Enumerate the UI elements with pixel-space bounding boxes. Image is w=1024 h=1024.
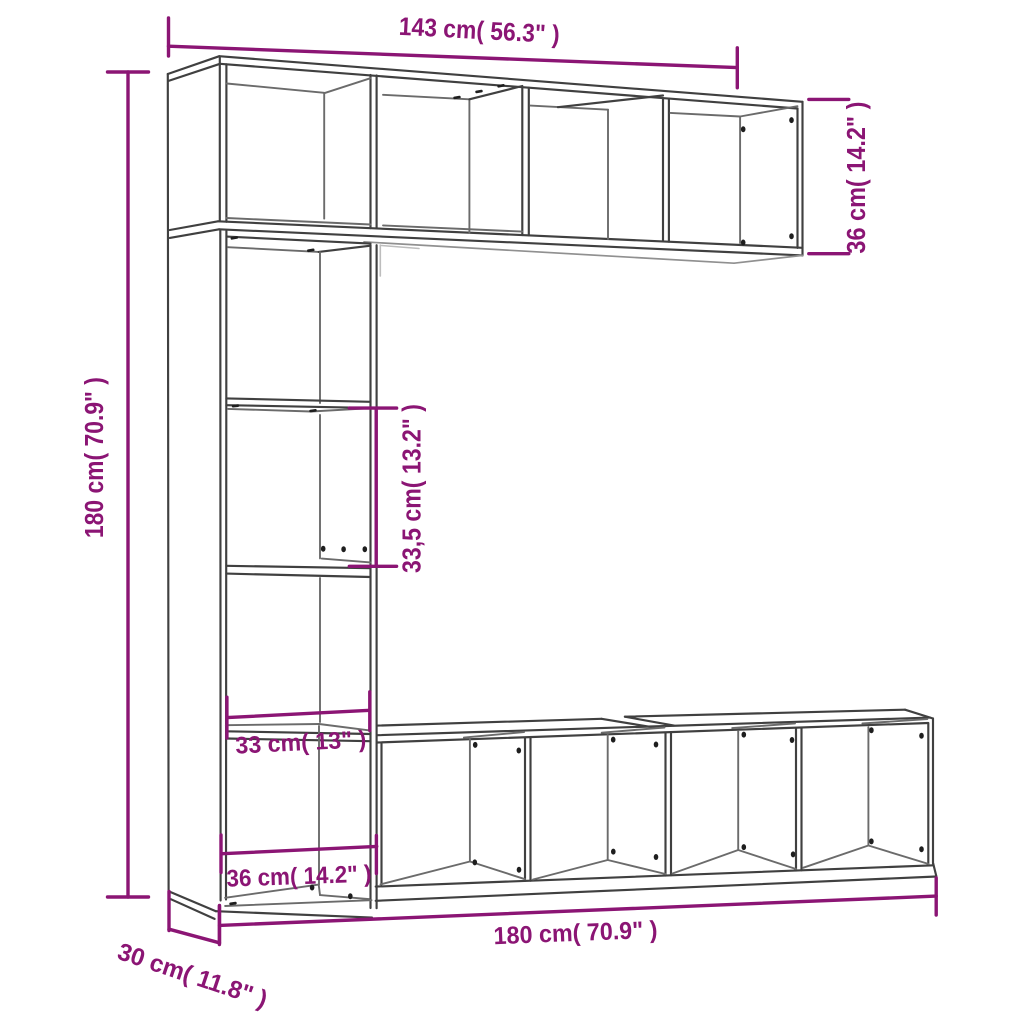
svg-text:33,5 cm( 13.2" ): 33,5 cm( 13.2" ) — [399, 404, 427, 573]
svg-text:36 cm( 14.2" ): 36 cm( 14.2" ) — [843, 102, 871, 254]
svg-text:143 cm( 56.3" ): 143 cm( 56.3" ) — [398, 13, 560, 49]
svg-text:180 cm( 70.9" ): 180 cm( 70.9" ) — [81, 377, 109, 538]
svg-text:36 cm( 14.2" ): 36 cm( 14.2" ) — [226, 861, 372, 893]
svg-text:33 cm( 13" ): 33 cm( 13" ) — [235, 726, 367, 760]
svg-text:180 cm( 70.9" ): 180 cm( 70.9" ) — [493, 917, 658, 951]
svg-text:30 cm( 11.8" ): 30 cm( 11.8" ) — [114, 938, 271, 1013]
